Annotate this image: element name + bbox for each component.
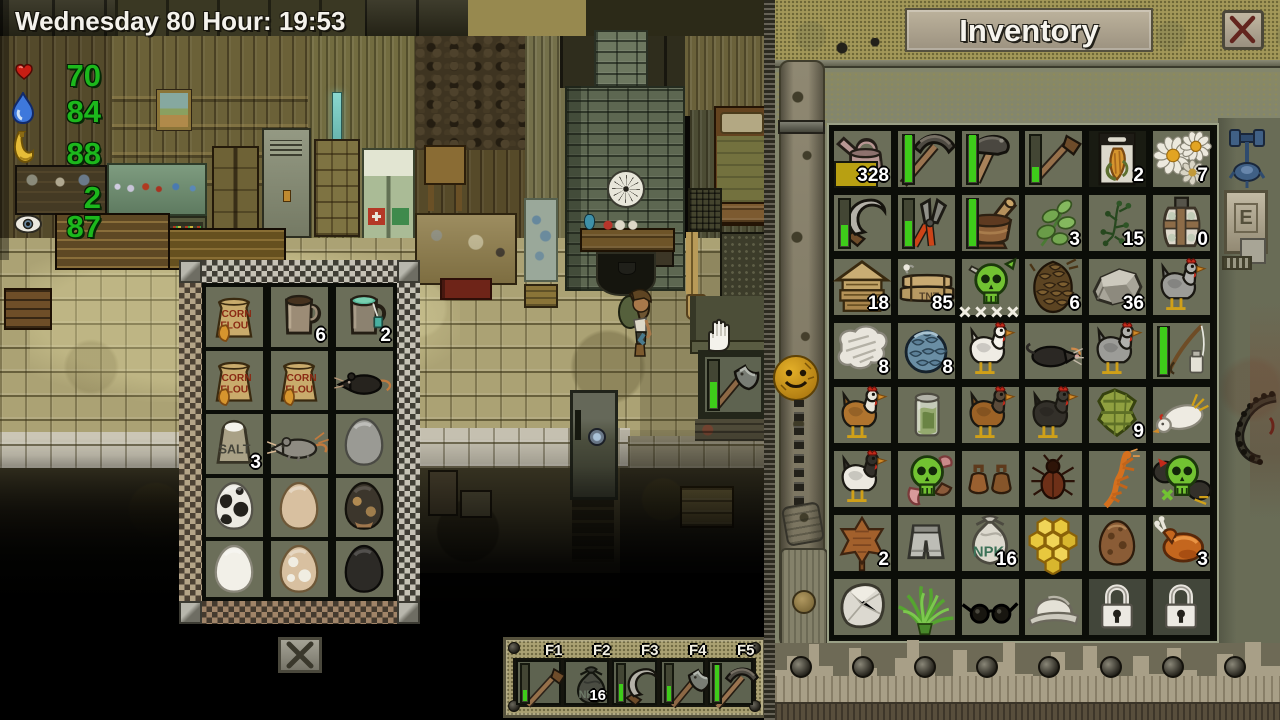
svg-text:SALT: SALT: [219, 442, 251, 456]
svg-text:CORN: CORN: [221, 309, 251, 320]
svg-text:CORN: CORN: [221, 373, 251, 384]
svg-text:CORN: CORN: [286, 373, 316, 384]
